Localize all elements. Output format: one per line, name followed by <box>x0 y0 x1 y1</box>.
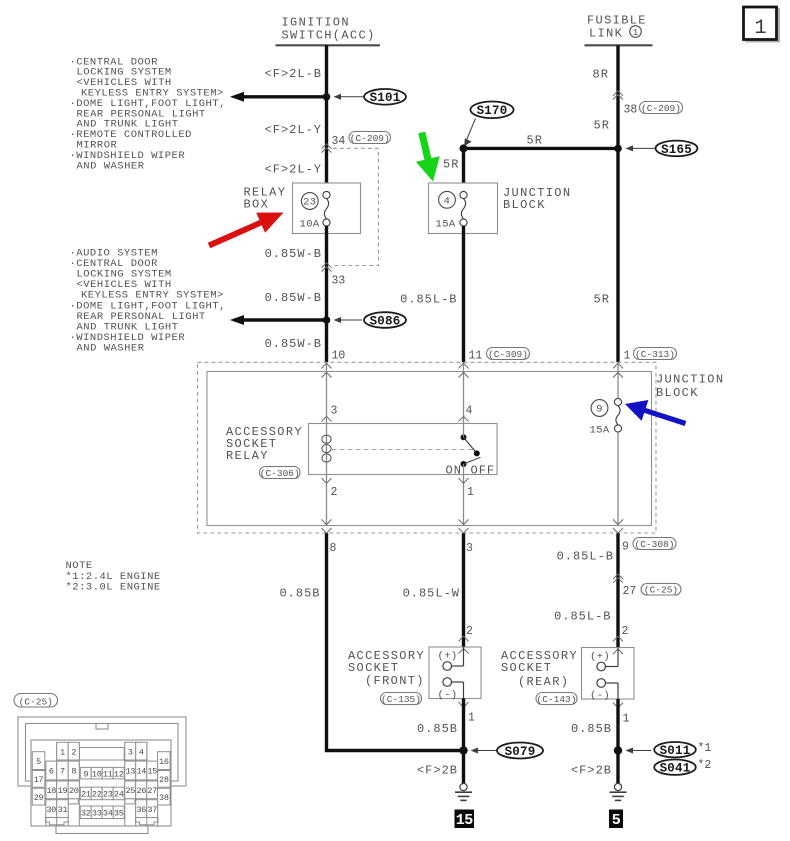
svg-text:(REAR): (REAR) <box>518 675 569 689</box>
svg-text:0.85W-B: 0.85W-B <box>265 291 322 305</box>
svg-text:9: 9 <box>622 541 629 554</box>
svg-text:S165: S165 <box>661 143 692 157</box>
svg-text:3: 3 <box>466 542 473 555</box>
svg-text:15A: 15A <box>590 425 610 437</box>
svg-text:*2: *2 <box>698 759 712 772</box>
svg-text:30: 30 <box>46 805 56 815</box>
svg-text:IGNITION: IGNITION <box>282 16 350 30</box>
svg-text:32: 32 <box>81 808 91 818</box>
svg-text:35: 35 <box>114 808 124 818</box>
svg-text:1: 1 <box>468 712 475 725</box>
svg-text:29: 29 <box>34 793 44 803</box>
svg-text:BLOCK: BLOCK <box>656 386 699 400</box>
svg-text:15A: 15A <box>436 219 456 231</box>
svg-text:S101: S101 <box>370 91 401 105</box>
svg-text:<F>2L-Y: <F>2L-Y <box>265 163 322 177</box>
svg-text:1: 1 <box>60 747 65 757</box>
svg-text:2: 2 <box>466 625 473 638</box>
svg-text:(FRONT): (FRONT) <box>365 674 425 688</box>
svg-text:0.85W-B: 0.85W-B <box>265 247 322 261</box>
svg-text:1: 1 <box>467 486 474 499</box>
svg-text:5: 5 <box>36 757 41 767</box>
svg-text:SWITCH(ACC): SWITCH(ACC) <box>282 29 376 43</box>
svg-text:AND WASHER: AND WASHER <box>77 343 145 355</box>
svg-text:FUSIBLE: FUSIBLE <box>587 14 647 28</box>
svg-text:0.85L-B: 0.85L-B <box>400 293 457 307</box>
svg-text:0.85B: 0.85B <box>417 722 458 736</box>
svg-text:9: 9 <box>596 404 603 416</box>
svg-text:34: 34 <box>103 808 113 818</box>
svg-text:<F>2B: <F>2B <box>571 764 612 778</box>
svg-text:12: 12 <box>114 769 124 779</box>
svg-text:5R: 5R <box>527 134 543 148</box>
svg-text:38: 38 <box>624 104 638 117</box>
svg-text:8R: 8R <box>593 68 609 82</box>
svg-text:(C-25): (C-25) <box>644 584 678 595</box>
svg-text:5R: 5R <box>443 158 459 172</box>
svg-text:7: 7 <box>60 767 65 777</box>
svg-text:BLOCK: BLOCK <box>503 198 546 212</box>
svg-text:24: 24 <box>114 790 124 800</box>
svg-text:8: 8 <box>71 767 76 777</box>
svg-text:6: 6 <box>49 767 54 777</box>
svg-text:0.85L-B: 0.85L-B <box>554 610 611 624</box>
svg-text:RELAY: RELAY <box>226 449 269 463</box>
svg-text:16: 16 <box>159 757 169 767</box>
svg-text:11: 11 <box>103 769 113 779</box>
svg-text:14: 14 <box>136 767 146 777</box>
svg-text:0.85B: 0.85B <box>571 722 612 736</box>
svg-text:15: 15 <box>456 812 474 829</box>
svg-text:SOCKET: SOCKET <box>348 661 399 675</box>
svg-text:0.85B: 0.85B <box>279 587 320 601</box>
svg-text:BOX: BOX <box>244 198 270 212</box>
svg-text:31: 31 <box>58 805 68 815</box>
svg-text:S086: S086 <box>370 314 401 328</box>
svg-text:OFF: OFF <box>471 464 496 478</box>
svg-text:(C-143): (C-143) <box>537 694 577 705</box>
svg-text:*1: *1 <box>698 742 712 755</box>
svg-text:ON: ON <box>446 464 462 478</box>
svg-text:(-): (-) <box>590 690 610 702</box>
svg-text:0.85L-B: 0.85L-B <box>557 550 614 564</box>
svg-text:JUNCTION: JUNCTION <box>656 373 724 387</box>
svg-text:AND WASHER: AND WASHER <box>77 160 145 172</box>
svg-text:26: 26 <box>136 786 146 796</box>
svg-text:1: 1 <box>633 27 639 38</box>
svg-text:<F>2L-B: <F>2L-B <box>265 67 322 81</box>
svg-text:(C-25): (C-25) <box>19 696 53 707</box>
svg-text:S170: S170 <box>477 104 508 118</box>
svg-text:8: 8 <box>330 542 337 555</box>
svg-text:10: 10 <box>332 350 346 363</box>
svg-text:38: 38 <box>159 793 169 803</box>
svg-text:37: 37 <box>147 805 157 815</box>
svg-text:21: 21 <box>81 790 91 800</box>
svg-text:LINK: LINK <box>589 27 623 41</box>
svg-text:SOCKET: SOCKET <box>501 661 552 675</box>
svg-text:27: 27 <box>623 585 637 598</box>
svg-text:5R: 5R <box>594 119 610 133</box>
svg-text:(C-209): (C-209) <box>641 103 681 114</box>
svg-text:11: 11 <box>469 350 483 363</box>
svg-text:0.85W-B: 0.85W-B <box>265 337 322 351</box>
svg-text:15: 15 <box>147 767 157 777</box>
svg-text:25: 25 <box>125 786 135 796</box>
svg-text:4: 4 <box>139 747 144 757</box>
svg-text:5: 5 <box>612 812 621 829</box>
svg-text:13: 13 <box>125 767 135 777</box>
svg-text:33: 33 <box>92 808 102 818</box>
svg-text:1: 1 <box>624 350 631 363</box>
svg-text:23: 23 <box>103 790 113 800</box>
svg-text:1: 1 <box>623 713 630 726</box>
svg-text:4: 4 <box>444 195 451 207</box>
svg-text:<F>2B: <F>2B <box>417 764 458 778</box>
svg-text:S011: S011 <box>660 744 691 758</box>
svg-text:17: 17 <box>34 775 44 785</box>
svg-text:36: 36 <box>136 805 146 815</box>
svg-text:(+): (+) <box>438 651 458 663</box>
svg-text:2: 2 <box>71 747 76 757</box>
svg-text:(C-135): (C-135) <box>381 694 421 705</box>
svg-text:(+): (+) <box>590 651 610 663</box>
svg-text:2: 2 <box>331 486 338 499</box>
svg-text:(C-209): (C-209) <box>350 133 390 144</box>
svg-text:(C-306): (C-306) <box>260 468 300 479</box>
svg-text:(-): (-) <box>438 690 458 702</box>
svg-text:4: 4 <box>466 405 473 418</box>
svg-text:9: 9 <box>83 769 88 779</box>
svg-text:S079: S079 <box>505 745 536 759</box>
svg-text:1: 1 <box>754 17 766 40</box>
svg-text:22: 22 <box>92 790 102 800</box>
svg-text:(C-313): (C-313) <box>635 349 675 360</box>
svg-text:18: 18 <box>46 786 56 796</box>
svg-text:34: 34 <box>332 135 346 148</box>
svg-text:*2:3.0L ENGINE: *2:3.0L ENGINE <box>66 581 161 593</box>
svg-text:(C-309): (C-309) <box>488 349 528 360</box>
svg-text:10A: 10A <box>300 219 320 231</box>
svg-text:3: 3 <box>331 405 338 418</box>
svg-text:20: 20 <box>69 786 79 796</box>
svg-text:3: 3 <box>128 747 133 757</box>
svg-text:23: 23 <box>303 197 316 209</box>
svg-text:<F>2L-Y: <F>2L-Y <box>265 123 322 137</box>
svg-text:S041: S041 <box>660 762 691 776</box>
svg-text:19: 19 <box>58 786 68 796</box>
svg-text:28: 28 <box>159 775 169 785</box>
svg-text:5R: 5R <box>594 293 610 307</box>
svg-text:33: 33 <box>332 275 346 288</box>
svg-text:(C-308): (C-308) <box>635 539 675 550</box>
svg-text:2: 2 <box>622 625 629 638</box>
svg-text:27: 27 <box>147 786 157 796</box>
svg-text:0.85L-W: 0.85L-W <box>403 587 460 601</box>
svg-text:10: 10 <box>92 769 102 779</box>
